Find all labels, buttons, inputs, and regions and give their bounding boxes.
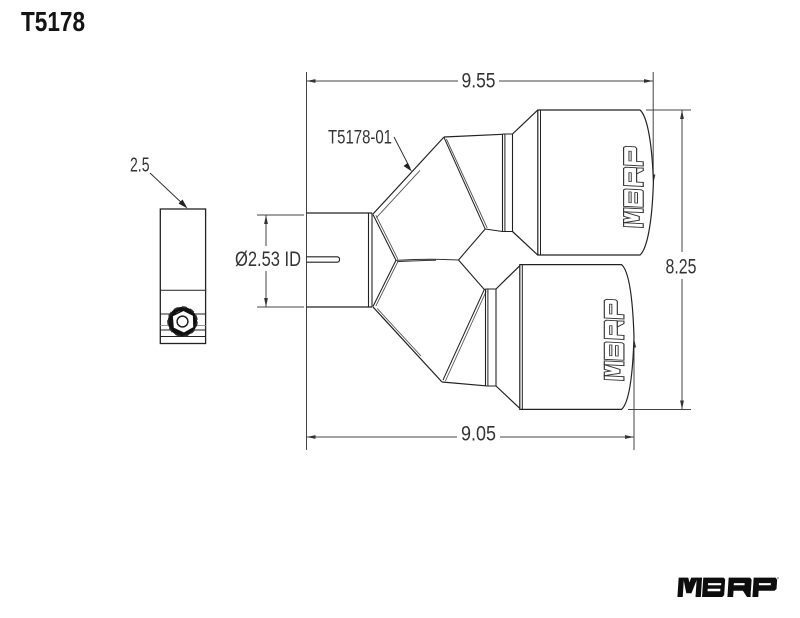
svg-text:T5178: T5178	[21, 6, 85, 37]
svg-text:Ø2.53 ID: Ø2.53 ID	[235, 248, 301, 271]
svg-text:9.05: 9.05	[461, 423, 496, 446]
svg-text:8.25: 8.25	[666, 256, 697, 279]
svg-text:2.5: 2.5	[130, 154, 150, 177]
svg-text:T5178-01: T5178-01	[328, 127, 392, 149]
svg-text:9.55: 9.55	[462, 70, 496, 93]
